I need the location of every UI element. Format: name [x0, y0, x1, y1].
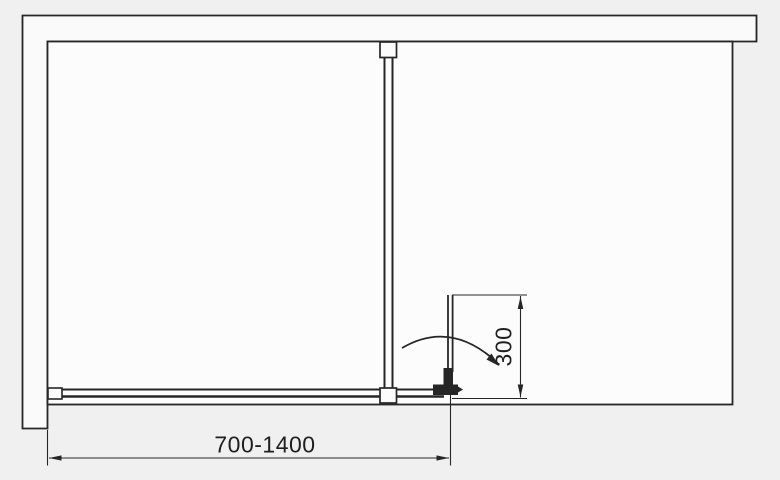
width-dimension-label: 700-1400: [214, 432, 315, 458]
wall-profile-bracket: [48, 388, 62, 399]
support-top-bracket: [380, 42, 397, 58]
enclosure-boundary: [48, 42, 733, 405]
hinge-horizontal-block: [433, 385, 458, 396]
support-bottom-bracket: [380, 388, 397, 403]
depth-dimension-label: 300: [491, 327, 517, 367]
technical-drawing: 700-1400 300: [0, 0, 780, 480]
